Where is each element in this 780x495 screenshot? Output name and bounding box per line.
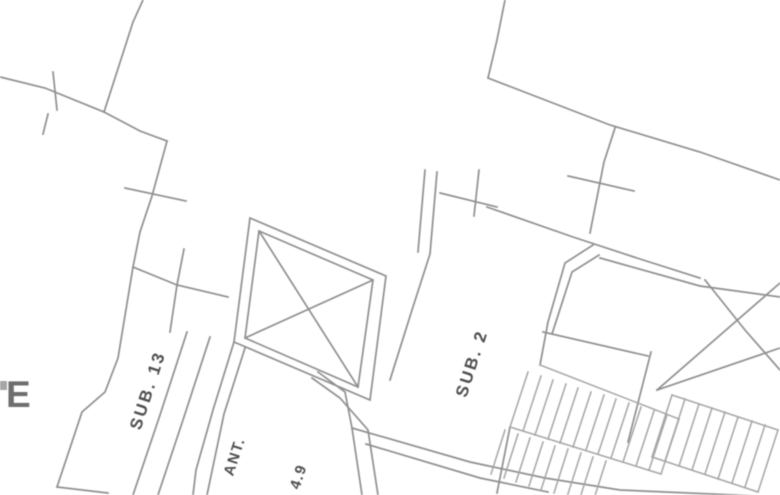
floor-plan-canvas: SUB. 13 SUB. 2 ANT. 4.9 E xyxy=(0,0,780,495)
edge-label-e: E xyxy=(6,374,31,415)
floor-plan-drawing: SUB. 13 SUB. 2 ANT. 4.9 E xyxy=(0,0,780,495)
